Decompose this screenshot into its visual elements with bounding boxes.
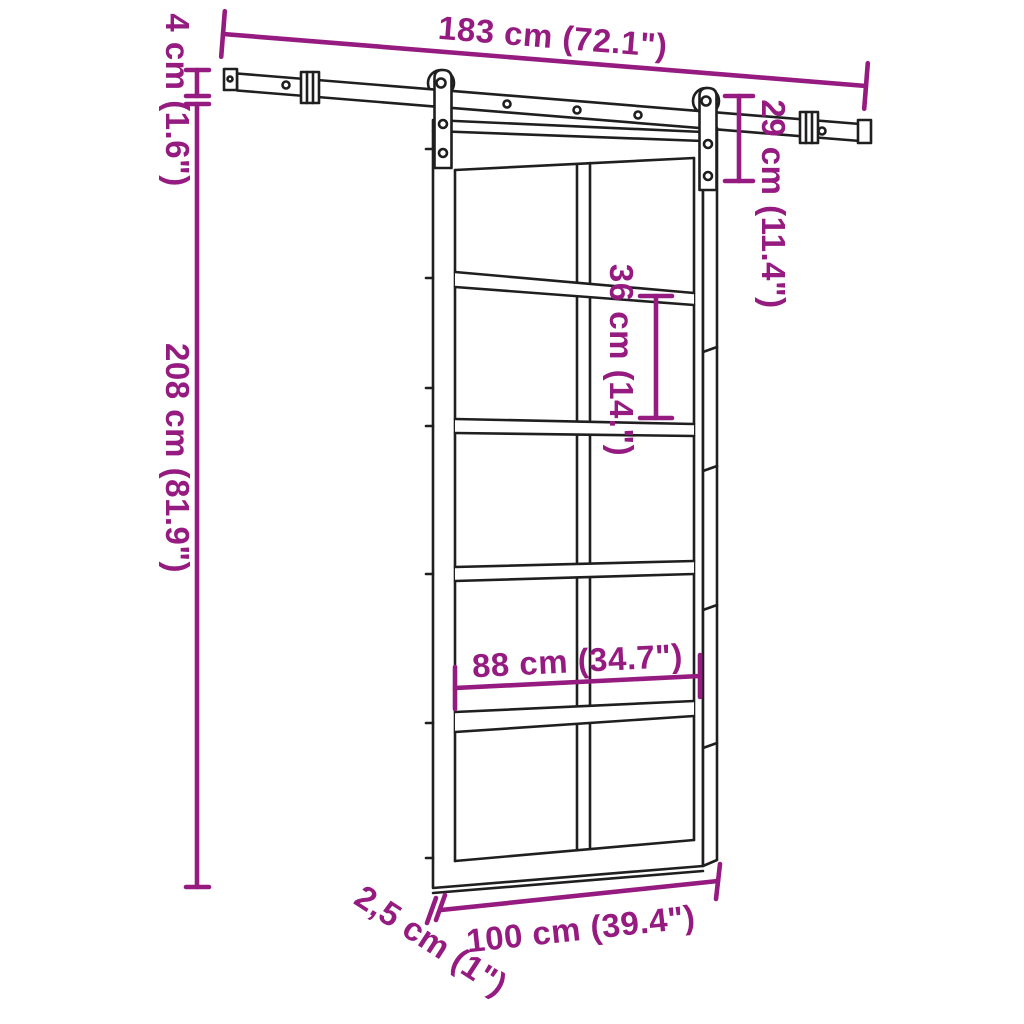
- door-side-face: [703, 128, 717, 866]
- wheel-bolt-icon: [702, 97, 711, 106]
- dim-label-panel-height: 36 cm (14."): [603, 264, 640, 456]
- barn-door-diagram: 183 cm (72.1") 4 cm (1.6") 208 cm (81.9"…: [0, 0, 1024, 1024]
- door-front-face: [433, 120, 703, 888]
- dim-label-door-height: 208 cm (81.9"): [159, 343, 196, 573]
- dim-label-rail-height: 4 cm (1.6"): [159, 13, 196, 186]
- wheel-bolt-icon: [437, 79, 446, 88]
- hanger-strap-left: [435, 70, 452, 168]
- rail-spacer-left: [301, 72, 319, 103]
- rail-end-cap-right: [858, 120, 871, 143]
- diagram-canvas: 183 cm (72.1") 4 cm (1.6") 208 cm (81.9"…: [0, 0, 1024, 1024]
- rail-spacer-right: [800, 112, 818, 143]
- door-drawing: [426, 120, 717, 893]
- dim-door-height: 208 cm (81.9"): [159, 104, 209, 887]
- dim-label-door-width: 100 cm (39.4"): [464, 898, 697, 960]
- dim-rail-height: 4 cm (1.6"): [159, 13, 209, 186]
- dim-label-hanger-height: 29 cm (11.4"): [755, 99, 792, 308]
- hanger-strap-right: [700, 88, 717, 190]
